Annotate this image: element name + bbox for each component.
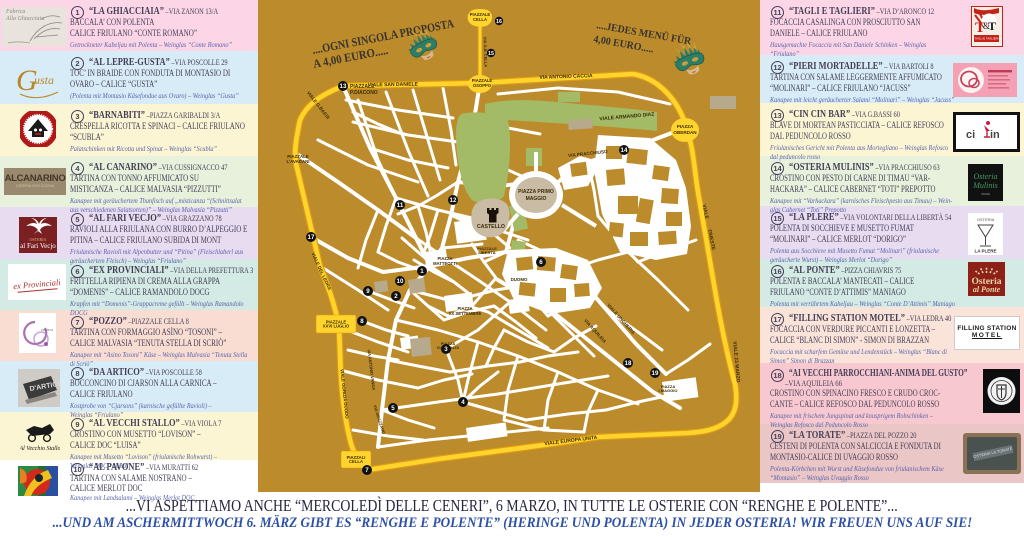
svg-text:CELLA: CELLA	[349, 459, 363, 464]
svg-text:al Ponte: al Ponte	[973, 285, 1001, 294]
svg-text:MATTEOTTI: MATTEOTTI	[433, 261, 457, 266]
svg-text:PIAZZA: PIAZZA	[677, 124, 694, 129]
svg-text:in: in	[990, 129, 1000, 141]
svg-text:OBERDAN: OBERDAN	[673, 130, 697, 135]
svg-text:T: T	[988, 19, 996, 33]
svg-text:15: 15	[488, 51, 494, 57]
svg-text:10: 10	[397, 278, 404, 285]
svg-text:DUOMO: DUOMO	[511, 277, 528, 282]
svg-text:TAGLI E TAGLIERI: TAGLI E TAGLIERI	[975, 37, 999, 41]
svg-text:LIBERTÀ: LIBERTÀ	[478, 250, 495, 255]
svg-text:7: 7	[365, 467, 369, 474]
svg-text:enoteca: enoteca	[41, 327, 53, 332]
svg-text:L'AVADANI: L'AVADANI	[286, 159, 309, 164]
svg-text:al Fari Vecjo: al Fari Vecjo	[20, 242, 56, 250]
svg-text:XXVI LUGLIO: XXVI LUGLIO	[323, 324, 350, 329]
svg-text:ci: ci	[966, 129, 975, 141]
svg-text:11: 11	[397, 202, 404, 209]
svg-text:12: 12	[450, 197, 457, 204]
svg-text:CELLA: CELLA	[473, 17, 487, 22]
svg-text:14: 14	[621, 147, 628, 154]
svg-text:17: 17	[308, 234, 315, 241]
svg-text:18: 18	[625, 360, 632, 367]
svg-text:13: 13	[340, 83, 347, 90]
svg-text:XX SETTEMBRE: XX SETTEMBRE	[449, 311, 482, 316]
svg-text:LA PLERE: LA PLERE	[974, 249, 996, 254]
svg-text:4: 4	[461, 399, 465, 406]
svg-text:OSTERIA: OSTERIA	[977, 217, 995, 222]
svg-text:3: 3	[444, 346, 448, 353]
svg-text:CASTELLO: CASTELLO	[477, 224, 505, 230]
svg-text:OSOPPO: OSOPPO	[473, 83, 492, 88]
svg-text:VIALE SAN DANIELE: VIALE SAN DANIELE	[368, 82, 419, 89]
svg-text:usta: usta	[34, 73, 54, 87]
svg-text:6: 6	[539, 259, 543, 266]
svg-text:1: 1	[420, 268, 424, 275]
svg-text:Al Vecchio Stallo: Al Vecchio Stallo	[20, 446, 60, 452]
svg-text:19: 19	[652, 370, 659, 377]
svg-text:5: 5	[391, 405, 395, 412]
svg-text:MAGGIO: MAGGIO	[526, 196, 547, 202]
svg-text:PIAZZA PRIMO: PIAZZA PRIMO	[518, 189, 554, 195]
svg-text:8: 8	[360, 318, 364, 325]
svg-text:P.DIACONO: P.DIACONO	[350, 90, 378, 96]
svg-text:16: 16	[496, 19, 502, 25]
svg-text:I MAGGIO: I MAGGIO	[659, 388, 678, 393]
svg-text:2: 2	[394, 293, 398, 300]
svg-text:9: 9	[366, 288, 370, 295]
